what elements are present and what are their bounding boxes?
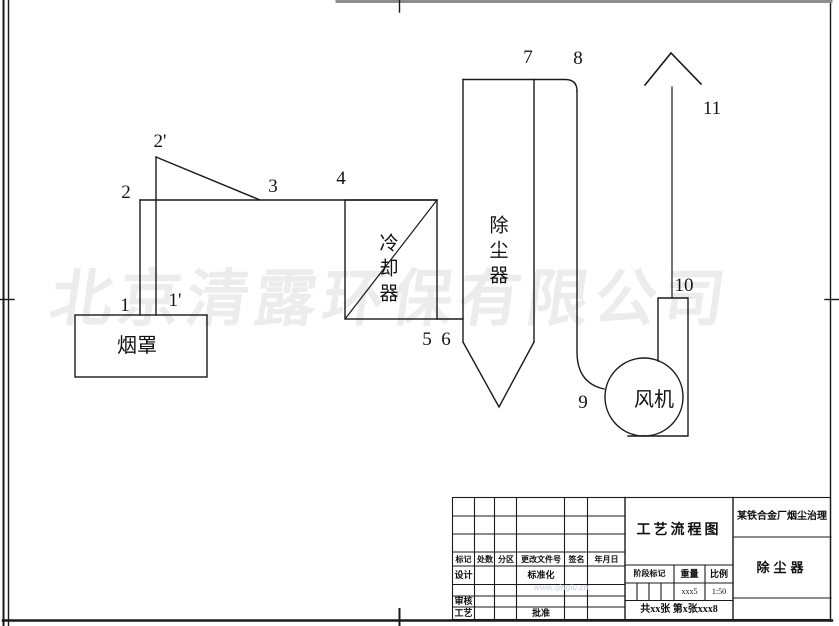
drawing-sheet: 北京清露环保有限公司 www.qinglu.cn [0, 0, 839, 626]
collector-top-edge [463, 80, 577, 92]
collector-cone [463, 342, 534, 407]
role-design: 设计 [452, 566, 475, 584]
point-label-7: 7 [523, 47, 533, 68]
sheet-info: 共xx张 第x张xxx8 [625, 600, 733, 619]
stage-mark-label: 阶段标记 [625, 565, 674, 583]
point-label-6: 6 [441, 329, 451, 350]
role-review: 审核 [452, 596, 475, 607]
point-label-9: 9 [578, 392, 588, 413]
rev-header-doc-no: 更改文件号 [517, 553, 565, 566]
point-label-1p: 1' [169, 290, 182, 311]
point-label-10: 10 [675, 275, 694, 296]
exhaust-arrow-icon [645, 53, 701, 85]
point-label-5: 5 [422, 329, 432, 350]
rev-header-mark: 标记 [452, 553, 475, 566]
fan-label: 风机 [614, 385, 694, 409]
scale-label: 比例 [705, 565, 733, 583]
point-label-11: 11 [703, 98, 721, 119]
rev-header-sign: 签名 [565, 553, 588, 566]
rev-header-zone: 分区 [495, 553, 517, 566]
collector-label: 除尘器 [486, 208, 508, 296]
point-label-4: 4 [336, 168, 346, 189]
project-title: 某铁合金厂烟尘治理 [733, 497, 831, 537]
scale-value: 1:50 [705, 583, 733, 600]
hood-label: 烟罩 [97, 331, 177, 355]
rev-header-date: 年月日 [588, 553, 625, 566]
collector-outlet-pipe [577, 91, 604, 389]
point-label-2: 2 [121, 182, 131, 203]
cooler-label: 冷却器 [376, 226, 398, 314]
role-standardization: 标准化 [517, 566, 565, 584]
role-approve: 批准 [517, 607, 565, 619]
weight-value: xxx5 [674, 583, 705, 600]
drawing-title: 工艺流程图 [625, 497, 733, 565]
weight-label: 重量 [674, 565, 705, 583]
point-label-8: 8 [573, 48, 583, 69]
damper-line [156, 157, 260, 200]
point-label-2p: 2' [154, 131, 167, 152]
point-label-1: 1 [120, 295, 130, 316]
point-label-3: 3 [268, 176, 278, 197]
rev-header-count: 处数 [475, 553, 495, 566]
part-title: 除尘器 [733, 537, 831, 598]
role-process: 工艺 [452, 607, 475, 619]
